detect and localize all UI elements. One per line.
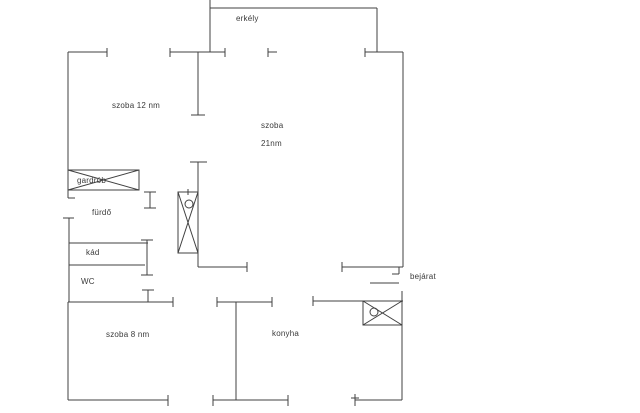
label-entrance: bejárat	[410, 272, 436, 281]
bathroom-cabinet-fixture	[178, 192, 198, 253]
floorplan-canvas: erkély szoba 12 nm szoba 21nm gardrób fü…	[0, 0, 640, 413]
fixture-knob-circle	[185, 200, 193, 208]
entry-closet-fixture	[363, 301, 402, 325]
label-room-12sqm: szoba 12 nm	[112, 101, 160, 110]
label-bathroom: fürdő	[92, 208, 111, 217]
floorplan-drawing	[0, 0, 640, 413]
label-wc: WC	[81, 277, 95, 286]
label-bathtub: kád	[86, 248, 100, 257]
label-wardrobe: gardrób	[77, 176, 106, 185]
label-room-8sqm: szoba 8 nm	[106, 330, 149, 339]
label-room-21sqm-word: szoba	[261, 121, 283, 130]
label-kitchen: konyha	[272, 329, 299, 338]
label-balcony: erkély	[236, 14, 259, 23]
label-room-21sqm-size: 21nm	[261, 139, 282, 148]
fixture-knob-circle	[370, 308, 378, 316]
